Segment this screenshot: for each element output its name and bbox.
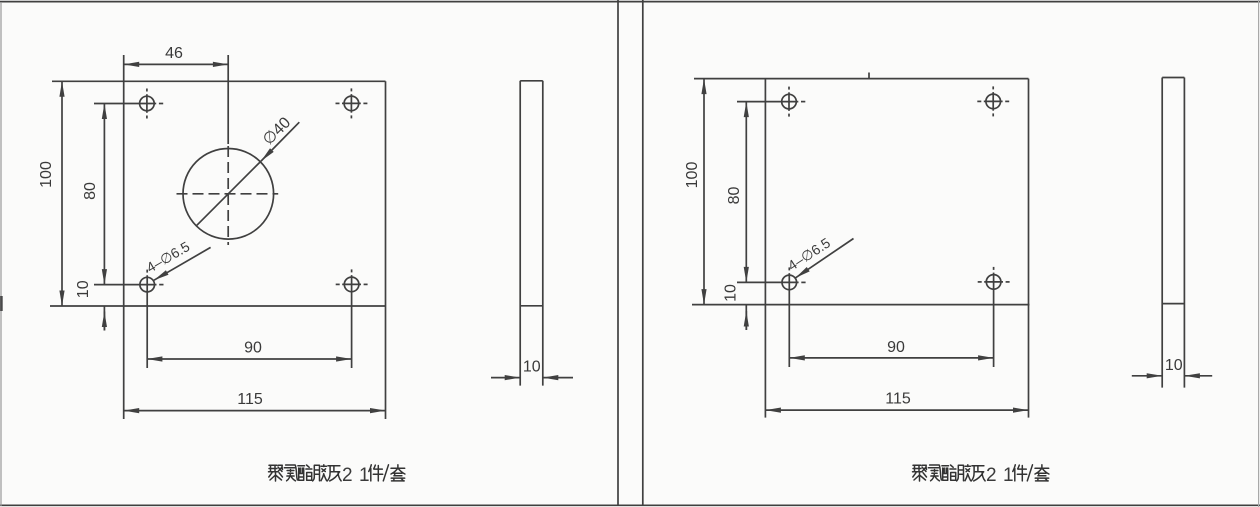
svg-text:80: 80 — [726, 187, 743, 205]
svg-text:46: 46 — [165, 45, 183, 62]
svg-text:10: 10 — [523, 359, 541, 376]
svg-text:100: 100 — [684, 162, 701, 189]
svg-text:115: 115 — [885, 391, 911, 408]
svg-text:115: 115 — [237, 391, 263, 408]
svg-text:10: 10 — [723, 284, 740, 302]
svg-text:10: 10 — [75, 280, 92, 298]
svg-text:10: 10 — [1165, 357, 1183, 374]
svg-text:90: 90 — [244, 340, 262, 357]
svg-text:100: 100 — [38, 161, 55, 188]
svg-text:4–∅6.5: 4–∅6.5 — [144, 238, 193, 276]
svg-text:90: 90 — [887, 339, 905, 356]
svg-text:80: 80 — [82, 182, 99, 200]
